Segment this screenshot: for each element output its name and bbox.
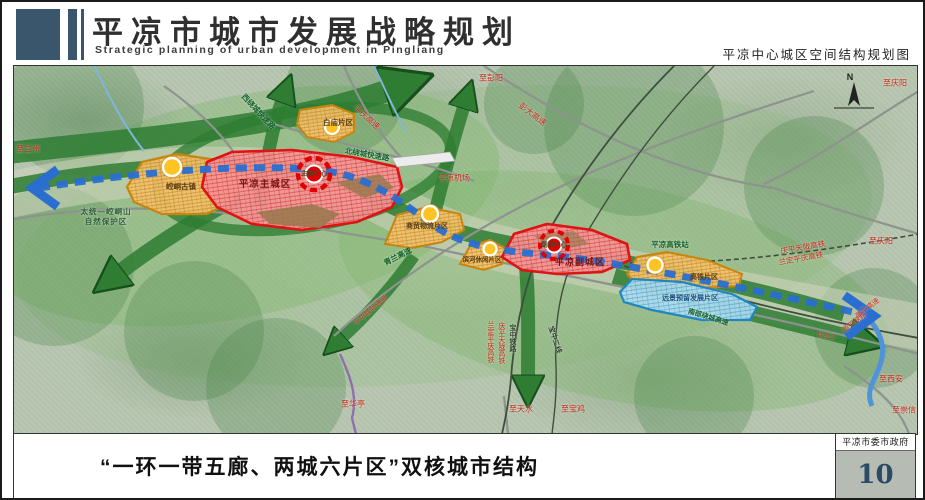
map-label-baozhong-railway: 宝中铁路 [508,324,516,352]
map-label-baozhong-line2: 宝中二线 [546,325,562,354]
map-label-to-xian: 至西安 [879,376,903,385]
map-label-hsr-district: 高铁片区 [690,274,718,282]
planning-document-page: 平凉市城市发展战略规划 Strategic planning of urban … [0,0,925,500]
map-label-north-ring-road: 北绕城快速路 [344,147,390,163]
map-label-pengda-expressway: 彭大高速 [517,102,548,128]
map-label-nature-reserve-line2: 自然保护区 [85,218,128,226]
map-label-to-chongxin: 至崇信 [892,407,916,416]
map-label-hsr-station: 平凉高铁站 [651,241,689,249]
page-footer: “一环一带五廊、两城六片区”双核城市结构 平凉市委市政府 10 [13,433,916,499]
structure-caption: “一环一带五廊、两城六片区”双核城市结构 [100,451,539,481]
header-accent-bar-thick [68,9,77,60]
header-accent-square [16,9,60,60]
map-label-to-lanzhou: 至兰州 [16,146,40,155]
page-number-box: 10 [836,451,915,498]
government-box: 平凉市委市政府 10 [835,434,915,498]
map-label-layer: 至兰州西绕城快速路北绕城快速路平庆高速至彭阳彭大高速至庆阳平凉机场青兰高速太统—… [14,66,917,434]
map-label-west-ring-road: 西绕城快速路 [240,93,277,132]
map-label-south-ring-expressway: 南部绕城高速 [687,308,729,328]
map-label-to-tianshui: 至天水 [509,406,533,415]
map-label-sub-city: 平凉副城区 [555,258,605,268]
map-label-sub-center: 副城中心 [541,241,567,248]
map-label-to-pengyang: 至彭阳 [479,75,503,84]
map-label-to-qingyang-top: 至庆阳 [883,80,907,89]
planning-map: 至兰州西绕城快速路北绕城快速路平庆高速至彭阳彭大高速至庆阳平凉机场青兰高速太统—… [13,65,918,435]
map-label-kongtong-town: 崆峒古镇 [166,183,196,191]
map-label-to-baoji: 至宝鸡 [561,406,585,415]
map-label-qingpingtianlong-hsr-v: 庆平天陇高铁 [497,322,505,364]
map-label-main-city: 平凉主城区 [239,180,292,190]
map-label-pingqing-expressway: 平庆高速 [351,104,381,132]
map-subtitle: 平凉中心城区空间结构规划图 [722,44,911,63]
north-arrow-label: N [847,72,854,82]
map-label-baimiao-district: 白庙片区 [323,119,353,127]
header-accent-bar-thin [81,9,84,60]
map-label-pinghua-corridor: 平华城际通道 [352,295,389,328]
map-label-logistics-district: 商贸物流片区 [406,223,448,231]
government-label: 平凉市委市政府 [836,434,915,451]
page-title-english: Strategic planning of urban development … [95,44,445,56]
map-label-main-center: 主城中心 [301,170,327,177]
map-label-qinglan-expressway: 青兰高速 [383,247,413,268]
map-label-to-qingyang-east: 至庆阳 [869,238,893,247]
map-label-nature-reserve-line1: 太统—崆峒山 [81,208,132,216]
map-label-g312: G312 [817,332,835,342]
page-number: 10 [857,460,893,490]
page-header: 平凉市城市发展战略规划 Strategic planning of urban … [12,6,915,63]
map-label-to-huating: 至华亭 [341,401,365,410]
map-label-riverside-district: 滨河休闲片区 [463,256,502,263]
map-label-reserve-district: 远景预留发展片区 [662,295,718,303]
map-label-pingliang-airport: 平凉机场 [438,175,470,184]
map-label-landingpingqing-hsr-v: 兰定平庆高铁 [486,321,494,363]
